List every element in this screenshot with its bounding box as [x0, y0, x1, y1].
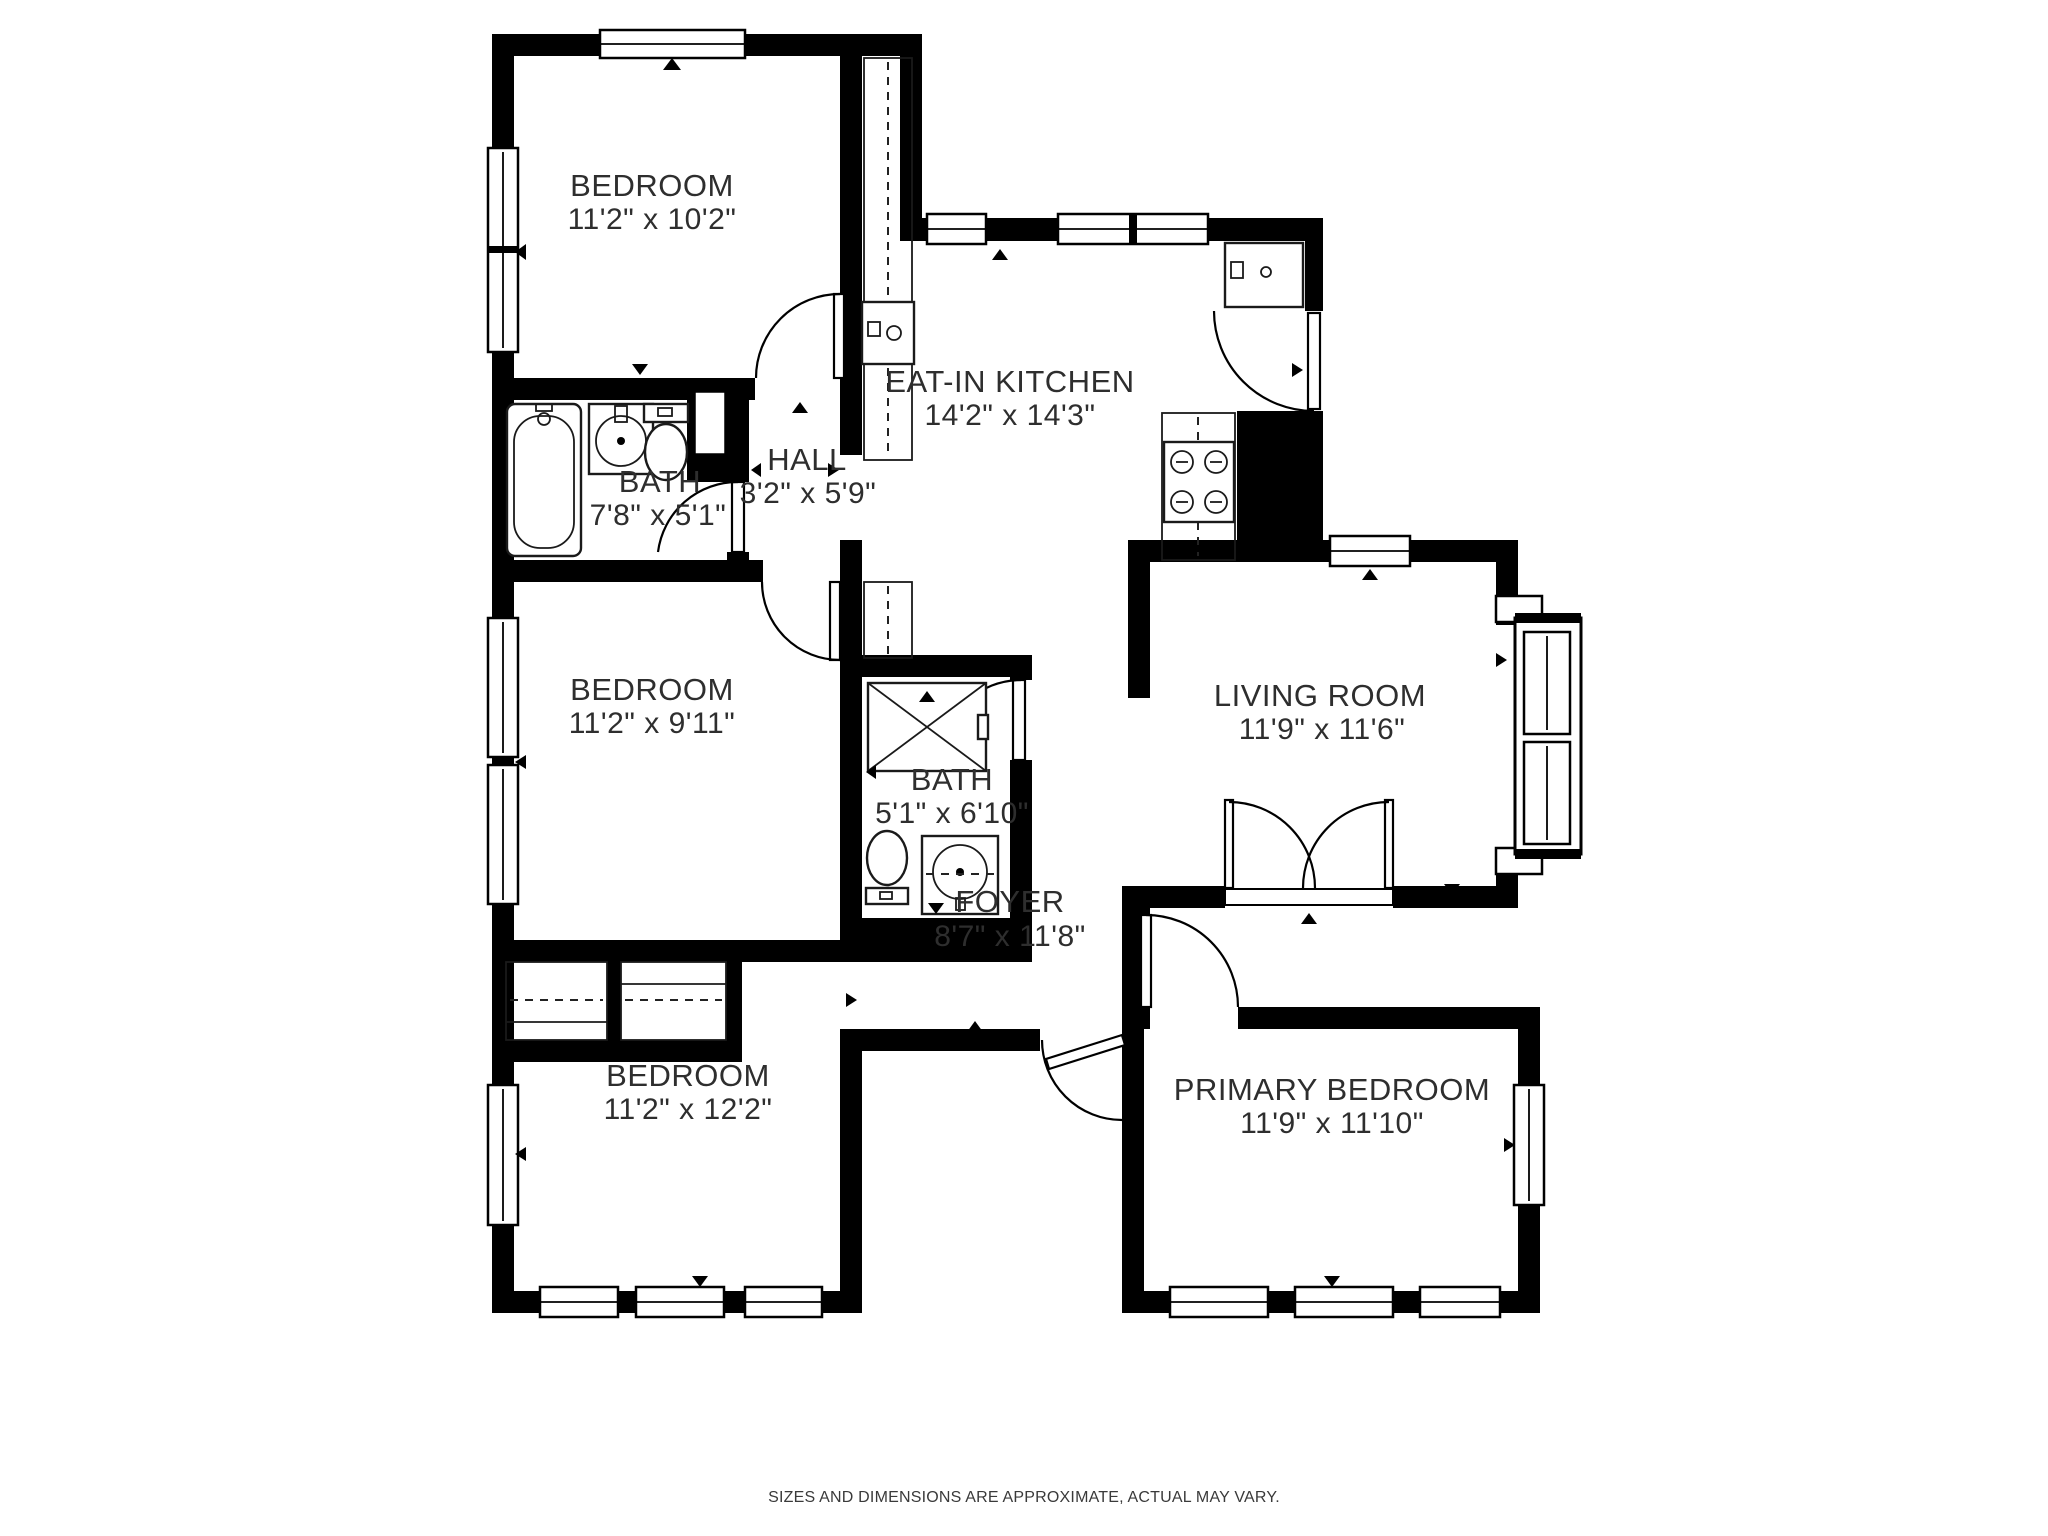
door-primary-bedroom [1141, 915, 1238, 1007]
room-label-eat-in-kitchen: EAT-IN KITCHEN [885, 364, 1134, 399]
room-labels: BEDROOM 11'2" x 10'2" EAT-IN KITCHEN 14'… [568, 168, 1491, 1140]
room-label-bedroom-top-left: BEDROOM [570, 168, 734, 203]
room-dims-bath-middle: 5'1" x 6'10" [875, 797, 1029, 830]
disclaimer-text: SIZES AND DIMENSIONS ARE APPROXIMATE, AC… [0, 1489, 2048, 1507]
room-label-foyer: FOYER [955, 884, 1064, 919]
window-icon-bedroomBL-bottom-2 [636, 1287, 724, 1317]
window-icon-primary-bottom-2 [1295, 1287, 1393, 1317]
room-label-bath-top: BATH [619, 464, 701, 499]
door-bedroomTL [756, 294, 844, 378]
door-kitchen-side [1214, 311, 1320, 411]
window-icon-bedroomTL-top [600, 30, 745, 58]
window-icon-bedroomM-left-2 [488, 765, 518, 904]
window-icon-primary-right [1514, 1085, 1544, 1205]
window-icon-primary-bottom-1 [1170, 1287, 1268, 1317]
room-label-bath-middle: BATH [911, 762, 993, 797]
room-dims-bedroom-bottom-left: 11'2" x 12'2" [604, 1093, 773, 1126]
room-dims-bedroom-top-left: 11'2" x 10'2" [568, 203, 737, 236]
window-icon-bedroomTL-left [488, 148, 518, 352]
window-icon-bedroomM-left-1 [488, 618, 518, 757]
room-label-living-room: LIVING ROOM [1214, 678, 1426, 713]
toilet-icon-middle [866, 831, 908, 904]
floor-plan-page: BEDROOM 11'2" x 10'2" EAT-IN KITCHEN 14'… [0, 0, 2048, 1536]
room-dims-hall: 3'2" x 5'9" [740, 477, 877, 510]
room-dims-primary-bedroom: 11'9" x 11'10" [1240, 1107, 1424, 1140]
room-label-primary-bedroom: PRIMARY BEDROOM [1174, 1072, 1490, 1107]
window-icon-bedroomBL-left [488, 1085, 518, 1225]
refrigerator-icon [1225, 243, 1303, 307]
room-dims-bedroom-middle: 11'2" x 9'11" [569, 707, 736, 740]
window-icon-bedroomBL-bottom-1 [540, 1287, 618, 1317]
window-icon-kitchen-top-1 [927, 214, 986, 244]
window-icon-living-top [1330, 536, 1410, 566]
bay-window-icon [1496, 596, 1581, 874]
room-label-bedroom-middle: BEDROOM [570, 672, 734, 707]
door-bedroomM [762, 582, 840, 660]
kitchen-fixtures [862, 58, 1303, 658]
room-dims-bath-top: 7'8" x 5'1" [590, 499, 727, 532]
room-dims-foyer: 8'7" x 11'8" [934, 920, 1086, 953]
window-icon-kitchen-top-2 [1058, 214, 1208, 244]
window-icon-bedroomBL-bottom-3 [745, 1287, 822, 1317]
room-dims-eat-in-kitchen: 14'2" x 14'3" [924, 399, 1095, 432]
french-doors-living [1225, 800, 1393, 905]
room-dims-living-room: 11'9" x 11'6" [1239, 713, 1406, 746]
floor-plan-drawing: BEDROOM 11'2" x 10'2" EAT-IN KITCHEN 14'… [0, 0, 2048, 1536]
room-label-hall: HALL [767, 442, 847, 477]
bathtub-icon [507, 404, 581, 556]
room-label-bedroom-bottom-left: BEDROOM [606, 1058, 770, 1093]
front-door [1042, 1035, 1125, 1120]
range-icon [1162, 413, 1235, 560]
window-icon-primary-bottom-3 [1420, 1287, 1500, 1317]
